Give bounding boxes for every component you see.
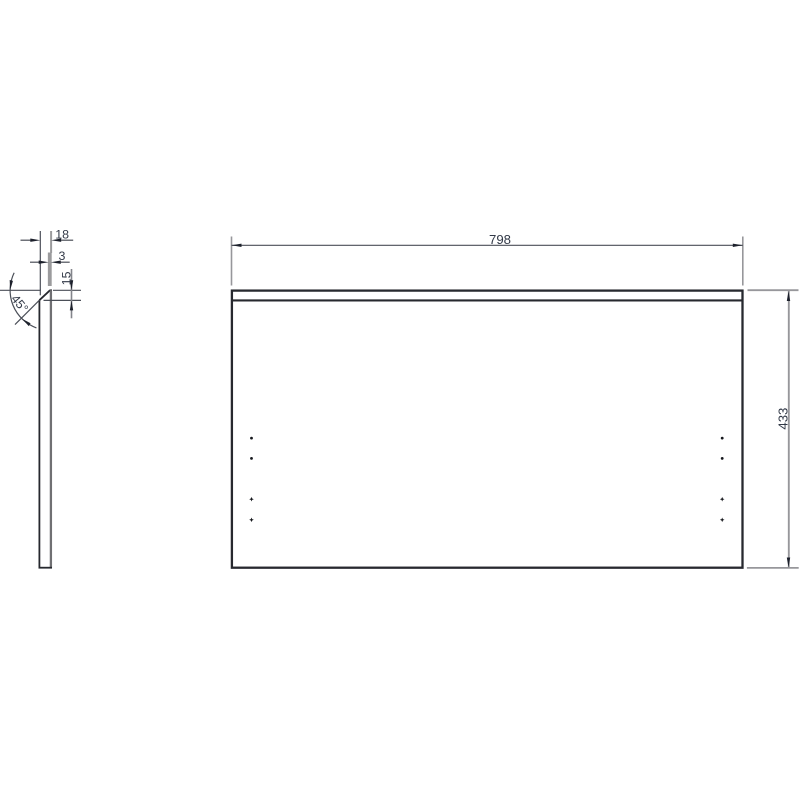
svg-text:3: 3 [59, 249, 66, 263]
svg-text:433: 433 [776, 408, 791, 430]
svg-text:18: 18 [55, 228, 69, 242]
svg-text:15: 15 [60, 271, 74, 285]
svg-text:798: 798 [489, 232, 511, 247]
